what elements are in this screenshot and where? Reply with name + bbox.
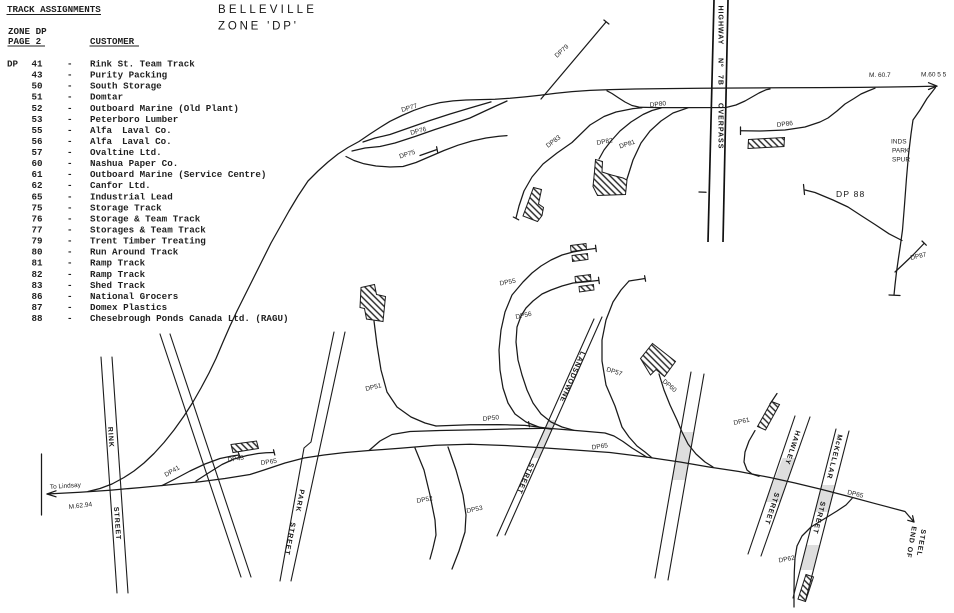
svg-text:DP 88: DP 88 [836, 189, 865, 199]
svg-text:M. 60.7: M. 60.7 [869, 72, 891, 79]
svg-text:OVERPASS: OVERPASS [717, 103, 724, 149]
svg-text:PAGE 2: PAGE 2 [8, 36, 41, 47]
svg-text:BELLEVILLE: BELLEVILLE [218, 4, 317, 16]
svg-text:CUSTOMER: CUSTOMER [90, 36, 135, 47]
svg-text:ZONE 'DP': ZONE 'DP' [218, 21, 299, 33]
svg-text:7B: 7B [717, 75, 724, 86]
svg-text:Nº: Nº [717, 58, 724, 68]
svg-text:SPUR: SPUR [892, 157, 910, 164]
svg-text:INDS: INDS [891, 139, 907, 146]
svg-text:88-Chesebrough Ponds Canada Lt: 88-Chesebrough Ponds Canada Ltd. (RAGU) [32, 313, 289, 324]
svg-text:RINK: RINK [106, 427, 114, 449]
svg-text:PARK: PARK [892, 148, 910, 155]
svg-text:61-Outboard Marine (Service Ce: 61-Outboard Marine (Service Centre) [32, 169, 267, 180]
svg-text:DP: DP [7, 59, 19, 70]
svg-text:M.60 5 5: M.60 5 5 [921, 72, 947, 79]
svg-text:HIGHWAY: HIGHWAY [717, 6, 724, 46]
svg-text:TRACK ASSIGNMENTS: TRACK ASSIGNMENTS [7, 4, 101, 15]
